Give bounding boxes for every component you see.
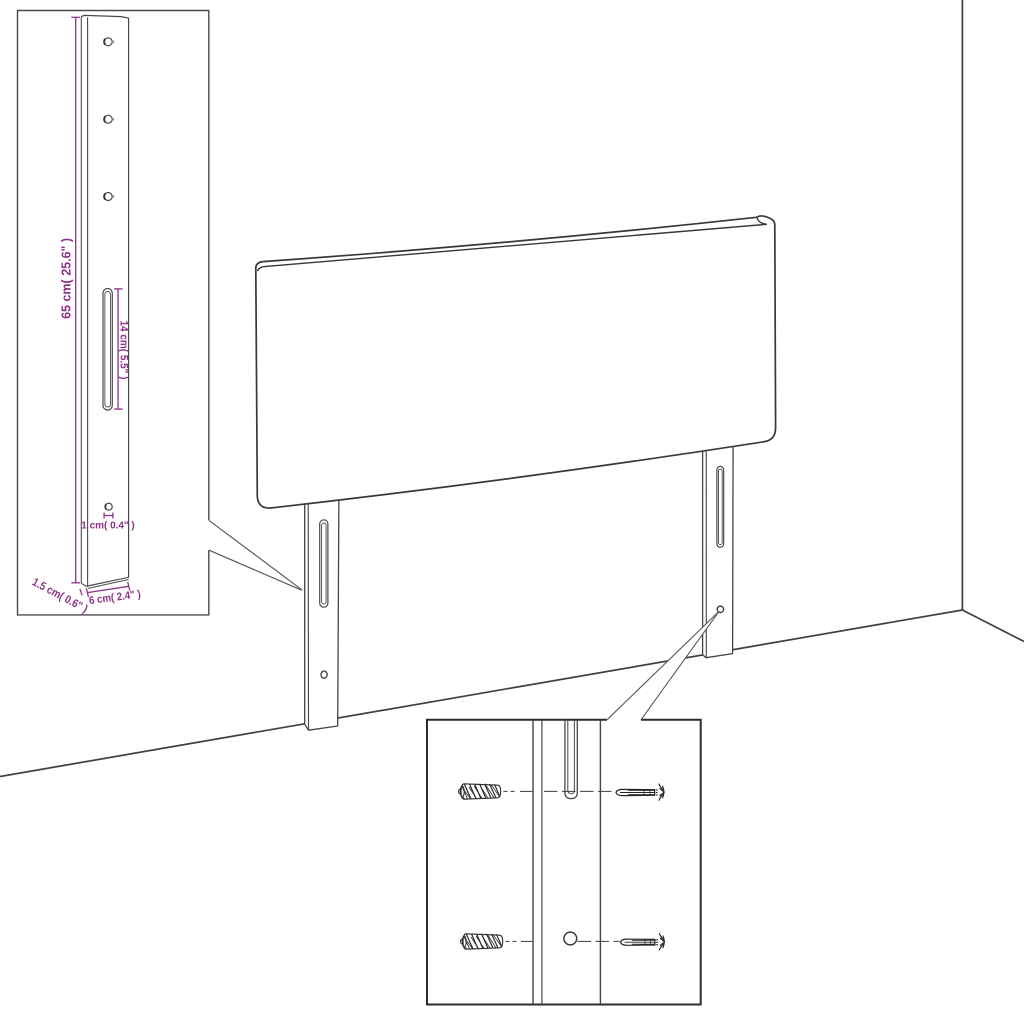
svg-text:65 cm( 25.6" ): 65 cm( 25.6" ) bbox=[59, 238, 74, 319]
svg-text:1 cm( 0.4" ): 1 cm( 0.4" ) bbox=[81, 520, 135, 532]
svg-text:14 cm( 5.5" ): 14 cm( 5.5" ) bbox=[117, 321, 129, 380]
